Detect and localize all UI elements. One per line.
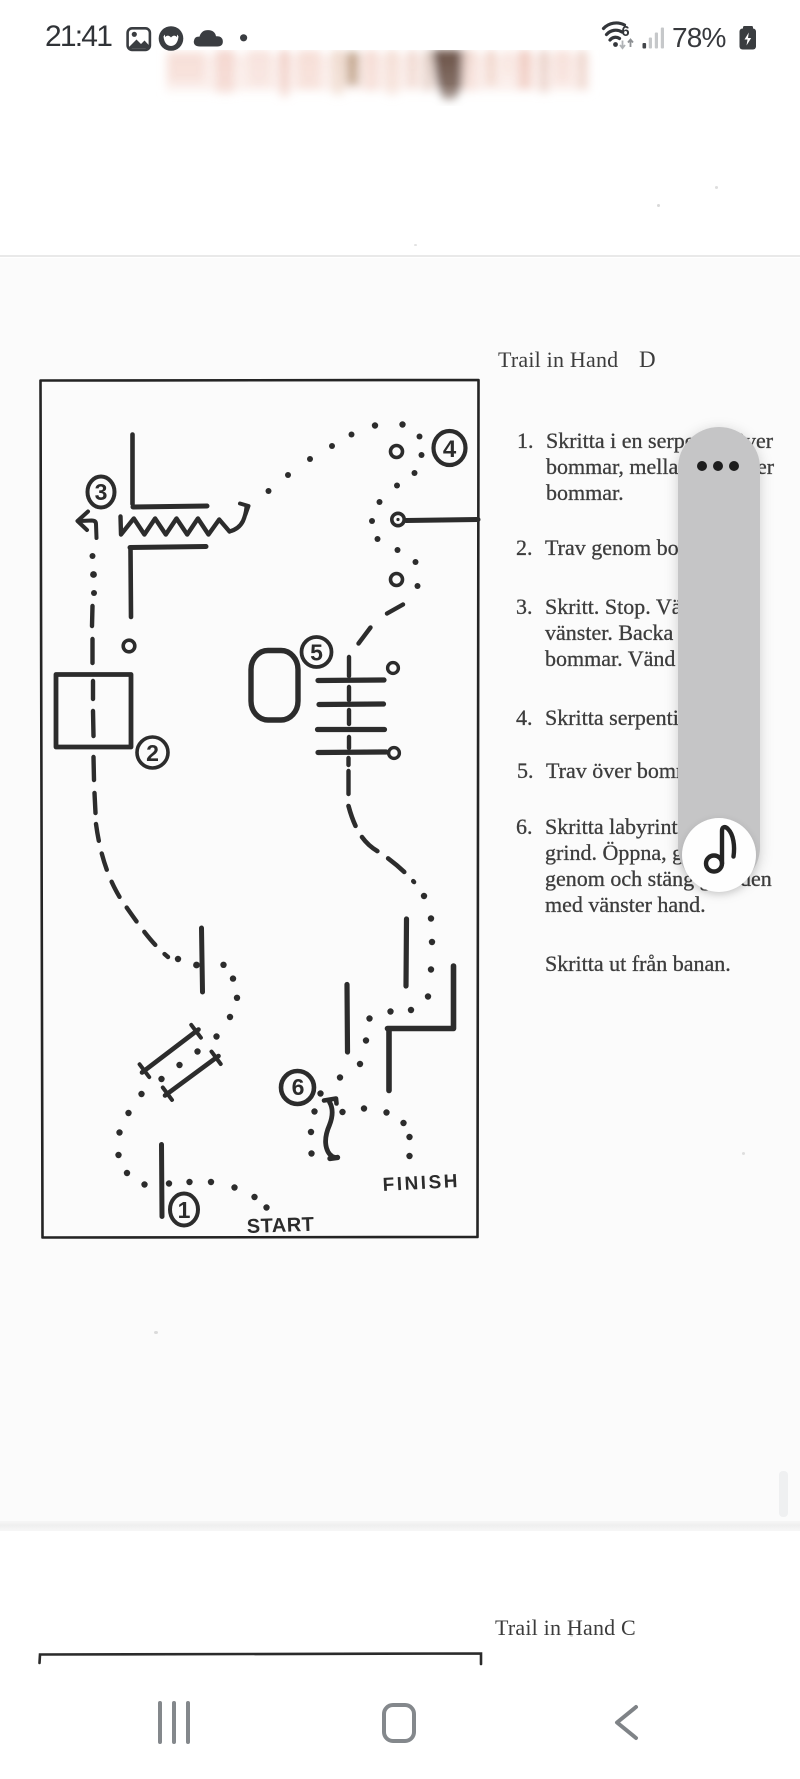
svg-text:6: 6 — [292, 1074, 305, 1100]
svg-text:4: 4 — [443, 436, 457, 463]
svg-text:2: 2 — [146, 740, 159, 766]
svg-text:1: 1 — [178, 1197, 191, 1223]
svg-text:3: 3 — [95, 479, 108, 505]
svg-text:START: START — [246, 1214, 314, 1238]
svg-text:5: 5 — [310, 640, 323, 666]
svg-text:FINISH: FINISH — [382, 1171, 460, 1196]
